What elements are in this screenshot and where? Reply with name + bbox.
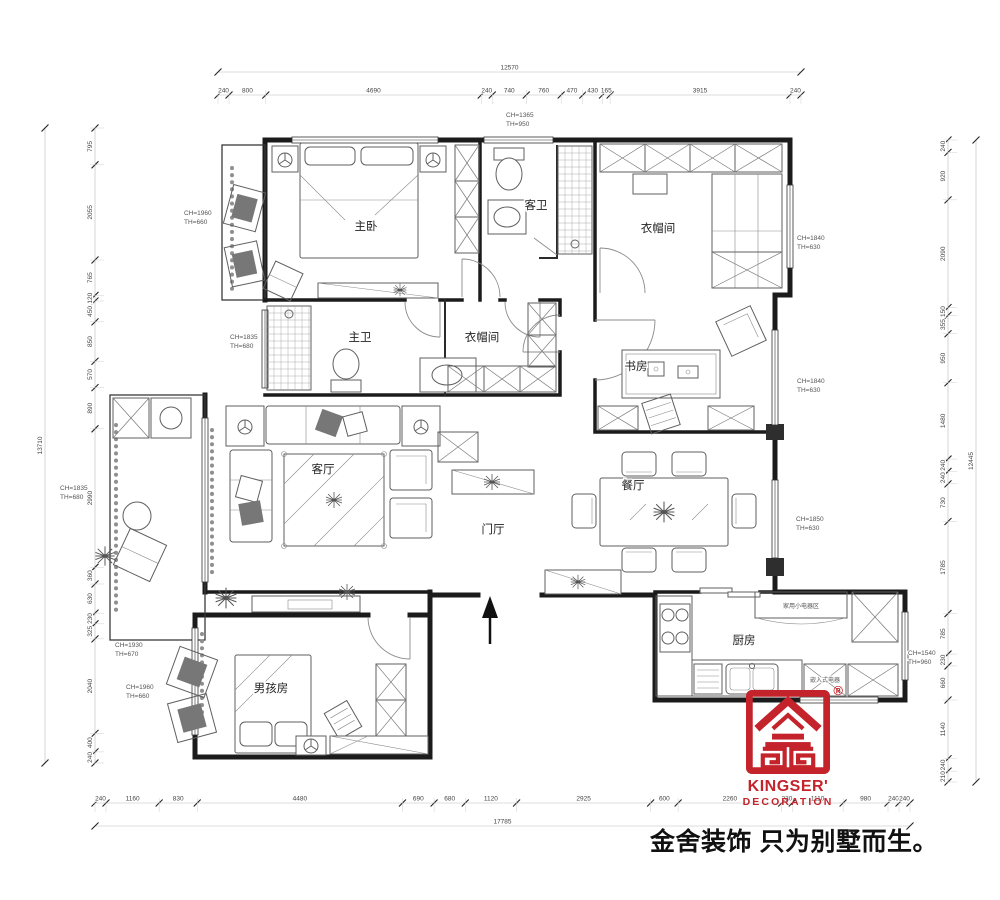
svg-text:CH=1365: CH=1365	[506, 112, 534, 119]
svg-text:2090: 2090	[940, 246, 947, 261]
annotation-kitchen-right: CH=1540 TH=960	[908, 650, 936, 666]
svg-text:CH=1840: CH=1840	[797, 235, 825, 242]
room-label-master-bathroom: 主卫	[349, 331, 372, 344]
svg-text:TH=670: TH=670	[115, 651, 139, 658]
svg-text:240: 240	[940, 472, 947, 483]
annotation-study-right: CH=1840 TH=630	[797, 378, 825, 394]
svg-text:TH=950: TH=950	[506, 121, 530, 128]
svg-text:785: 785	[940, 628, 947, 639]
annotation-living-left: CH=1835 TH=680	[60, 485, 88, 501]
room-label-dining-room: 餐厅	[622, 478, 645, 492]
svg-text:TH=960: TH=960	[908, 659, 932, 666]
logo-text-decoration: DECORATION	[733, 796, 843, 808]
room-label-entrance-hall: 门厅	[482, 522, 505, 536]
svg-text:CH=1960: CH=1960	[126, 684, 154, 691]
svg-text:165: 165	[601, 88, 612, 95]
toilet	[496, 158, 522, 190]
svg-text:740: 740	[504, 88, 515, 95]
svg-text:2990: 2990	[87, 490, 94, 505]
svg-text:850: 850	[87, 336, 94, 347]
svg-text:240: 240	[940, 140, 947, 151]
svg-text:600: 600	[659, 796, 670, 803]
svg-text:3915: 3915	[693, 88, 708, 95]
svg-text:450: 450	[87, 306, 94, 317]
svg-text:CH=1835: CH=1835	[230, 334, 258, 341]
brand-slogan: 金舍装饰 只为别墅而生。	[650, 822, 980, 858]
annotation-boys-left-upper: CH=1930 TH=670	[115, 642, 143, 658]
washing-machine	[151, 398, 191, 438]
svg-text:1160: 1160	[126, 796, 140, 803]
round-table	[123, 502, 151, 530]
svg-text:800: 800	[242, 88, 253, 95]
svg-text:1785: 1785	[940, 560, 947, 575]
svg-text:765: 765	[87, 272, 94, 283]
svg-text:13710: 13710	[37, 436, 44, 454]
living-room-furniture	[226, 406, 440, 549]
svg-text:950: 950	[940, 352, 947, 363]
svg-text:TH=630: TH=630	[797, 244, 821, 251]
dimension-chain-top: 2408004690240740760470430165391524012570	[215, 65, 805, 105]
annotation-boys-left-lower: CH=1960 TH=660	[126, 684, 154, 700]
floor-plan-page: 主卧 客卫 衣帽间 主卫 衣帽间 书房 客厅 门厅 餐厅 厨房 男孩房 家用小电…	[0, 0, 1000, 900]
svg-text:CH=1840: CH=1840	[797, 378, 825, 385]
svg-text:TH=660: TH=660	[126, 693, 150, 700]
kingser-logo: ® KINGSER' DECORATION	[733, 690, 843, 808]
room-label-boys-room: 男孩房	[254, 682, 289, 695]
svg-text:CH=1835: CH=1835	[60, 485, 88, 492]
svg-text:570: 570	[87, 369, 94, 380]
svg-text:470: 470	[567, 88, 578, 95]
svg-text:230: 230	[87, 613, 94, 624]
dimension-chain-left: 7952055765120450850570890299036063023032…	[37, 125, 104, 767]
svg-text:890: 890	[87, 402, 94, 413]
double-bed	[300, 143, 418, 258]
tv-console	[252, 596, 360, 612]
dimension-chain-right: 2409202090150355950148024024073017857852…	[940, 137, 980, 786]
svg-text:150: 150	[940, 306, 947, 317]
svg-text:TH=680: TH=680	[230, 343, 254, 350]
svg-text:2055: 2055	[87, 205, 94, 220]
annotation-top-window: CH=1365 TH=950	[506, 112, 534, 128]
svg-text:TH=680: TH=680	[60, 494, 84, 501]
svg-text:17785: 17785	[493, 819, 511, 826]
svg-text:120: 120	[87, 292, 94, 303]
svg-text:830: 830	[173, 796, 184, 803]
svg-text:240: 240	[940, 759, 947, 770]
svg-text:680: 680	[444, 796, 455, 803]
svg-text:4690: 4690	[366, 88, 381, 95]
svg-text:730: 730	[940, 497, 947, 508]
svg-text:TH=630: TH=630	[796, 525, 820, 532]
room-label-living-room: 客厅	[312, 462, 335, 476]
svg-text:CH=1960: CH=1960	[184, 210, 212, 217]
floor-plan-drawing: 主卧 客卫 衣帽间 主卫 衣帽间 书房 客厅 门厅 餐厅 厨房 男孩房 家用小电…	[0, 0, 1000, 900]
svg-text:760: 760	[538, 88, 549, 95]
room-label-master-bedroom: 主卧	[355, 220, 378, 233]
svg-text:920: 920	[940, 170, 947, 181]
svg-text:240: 240	[481, 88, 492, 95]
svg-text:CH=1850: CH=1850	[796, 516, 824, 523]
annotation-cloakroom-right: CH=1840 TH=630	[797, 235, 825, 251]
svg-text:230: 230	[940, 654, 947, 665]
svg-text:2925: 2925	[576, 796, 591, 803]
svg-text:1120: 1120	[484, 796, 498, 803]
svg-text:210: 210	[940, 771, 947, 782]
svg-text:TH=660: TH=660	[184, 219, 208, 226]
svg-text:325: 325	[87, 626, 94, 637]
registered-mark: ®	[833, 683, 843, 698]
svg-text:1480: 1480	[940, 413, 947, 428]
svg-text:240: 240	[790, 88, 801, 95]
room-label-guest-bathroom: 客卫	[525, 198, 548, 212]
svg-text:1140: 1140	[940, 722, 947, 736]
svg-text:400: 400	[87, 737, 94, 748]
svg-text:795: 795	[87, 141, 94, 152]
room-label-cloakroom-middle: 衣帽间	[465, 330, 500, 344]
svg-text:360: 360	[87, 570, 94, 581]
svg-text:TH=630: TH=630	[797, 387, 821, 394]
note-small-appliance-area: 家用小电器区	[783, 602, 819, 610]
svg-text:CH=1930: CH=1930	[115, 642, 143, 649]
svg-text:240: 240	[899, 796, 910, 803]
dining-room-furniture	[572, 452, 756, 572]
master-bedroom-furniture	[223, 143, 479, 301]
svg-text:4480: 4480	[293, 796, 308, 803]
svg-text:240: 240	[87, 752, 94, 763]
shower	[558, 146, 592, 254]
svg-text:430: 430	[587, 88, 598, 95]
svg-text:630: 630	[87, 593, 94, 604]
annotation-master-balcony: CH=1960 TH=660	[184, 210, 212, 226]
toilet	[333, 349, 359, 379]
svg-text:2040: 2040	[87, 679, 94, 694]
logo-text-kingser: KINGSER'	[733, 778, 843, 796]
north-arrow	[482, 596, 498, 644]
svg-text:240: 240	[888, 796, 899, 803]
room-label-study: 书房	[625, 360, 648, 373]
svg-text:240: 240	[95, 796, 106, 803]
svg-text:12445: 12445	[968, 452, 975, 470]
kitchen-furniture	[656, 592, 898, 696]
svg-text:CH=1540: CH=1540	[908, 650, 936, 657]
room-label-kitchen: 厨房	[733, 634, 756, 647]
annotation-master-bath: CH=1835 TH=680	[230, 334, 258, 350]
svg-text:690: 690	[413, 796, 424, 803]
cloakroom-top-cabinets	[600, 144, 782, 288]
stove	[660, 604, 690, 652]
svg-text:980: 980	[860, 796, 871, 803]
svg-text:240: 240	[218, 88, 229, 95]
room-label-cloakroom-top: 衣帽间	[641, 221, 676, 235]
svg-text:355: 355	[940, 319, 947, 330]
svg-text:12570: 12570	[500, 65, 518, 72]
kingser-logo-mark	[746, 690, 830, 774]
annotation-dining-right: CH=1850 TH=630	[796, 516, 824, 532]
study-furniture	[598, 306, 766, 434]
svg-text:240: 240	[940, 459, 947, 470]
desk	[622, 350, 720, 398]
svg-text:660: 660	[940, 677, 947, 688]
